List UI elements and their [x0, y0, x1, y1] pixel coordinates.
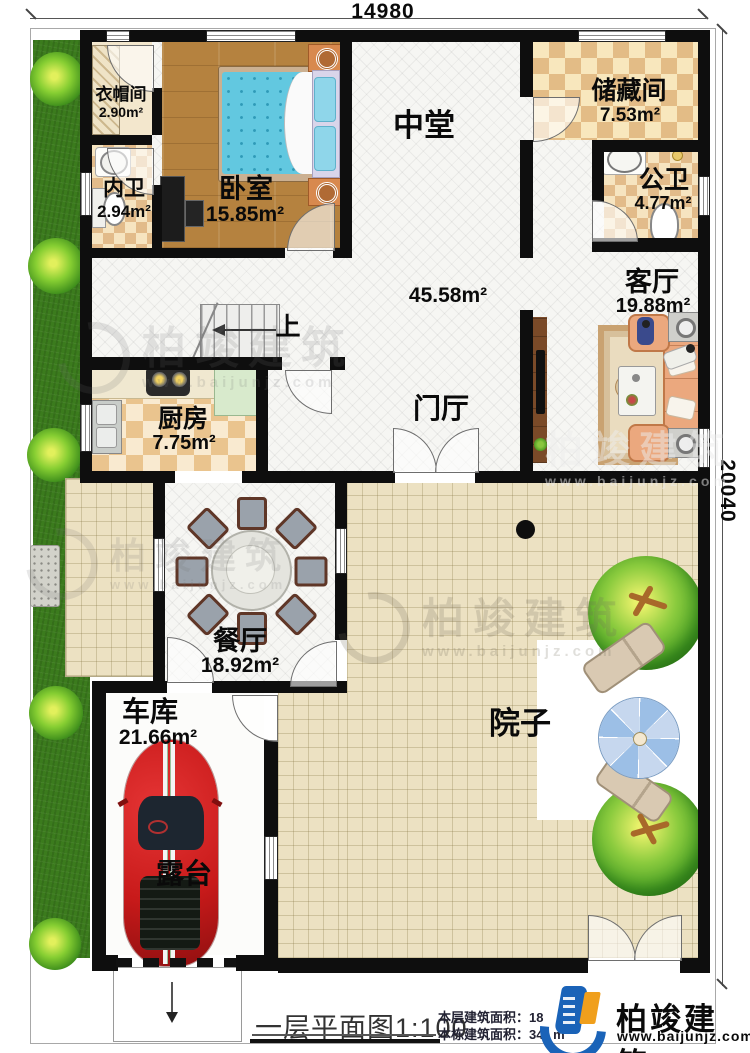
chair-icon [295, 557, 328, 587]
room-name-public-bath: 公卫 [639, 168, 689, 193]
wall [680, 958, 710, 973]
window [80, 172, 92, 216]
wall [242, 471, 345, 483]
wall [475, 471, 698, 483]
wall [92, 681, 167, 693]
wall [92, 248, 285, 258]
room-area-inner-bath: 2.94m² [97, 203, 151, 220]
room-area-dining: 18.92m² [201, 655, 279, 676]
wall [256, 370, 268, 471]
room-name-terrace: 露台 [156, 860, 212, 888]
window [698, 428, 710, 468]
room-area-bedroom: 15.85m² [206, 204, 284, 225]
bed-blanket [284, 72, 315, 174]
window [698, 176, 710, 216]
chair-icon [176, 557, 209, 587]
room-area-hall: 45.58m² [409, 285, 487, 306]
bush [29, 918, 81, 970]
driveway-apron [113, 967, 242, 1042]
kitchen-sink-basin [96, 427, 117, 448]
terrace-paving [278, 693, 347, 958]
wall [152, 88, 162, 135]
room-name-cloakroom: 衣帽间 [96, 86, 147, 103]
side-table-lamp [676, 318, 696, 338]
stairs-arrow [224, 329, 276, 331]
tv-icon [536, 350, 545, 414]
wall [592, 140, 698, 152]
car-steering [148, 820, 168, 834]
wall [520, 140, 533, 258]
room-area-public-bath: 4.77m² [634, 194, 691, 212]
kitchen-sink-basin [96, 404, 117, 425]
window [264, 836, 278, 880]
room-area-kitchen: 7.75m² [152, 433, 215, 453]
wall [340, 42, 352, 258]
room-name-garage: 车库 [122, 698, 178, 726]
bush [27, 428, 81, 482]
chair-icon [237, 497, 267, 530]
stove-burner [152, 372, 167, 387]
brand-name: 柏竣建筑 [616, 994, 750, 1053]
wall [264, 740, 278, 838]
room-area-storage: 7.53m² [600, 106, 660, 125]
room-area-living: 19.88m² [616, 296, 691, 316]
room-area-garage: 21.66m² [119, 727, 197, 748]
wall [92, 357, 282, 370]
driveway-arrow-head [166, 1012, 178, 1023]
bush [30, 52, 84, 106]
coffee-table-decor [626, 394, 638, 406]
wall [92, 955, 118, 971]
window [80, 404, 92, 452]
floor-area-label: 本层建筑面积： [438, 1010, 529, 1025]
stove-burner [172, 372, 187, 387]
wall [236, 955, 278, 971]
dining-table-inner [226, 545, 275, 594]
armchair-icon [628, 424, 670, 462]
room-name-inner-bath: 内卫 [103, 178, 145, 199]
stone-mat [30, 545, 60, 607]
window [153, 538, 165, 592]
wall [520, 310, 533, 471]
wall [278, 958, 588, 973]
window [206, 30, 296, 42]
dresser-icon [185, 200, 204, 227]
room-name-dining: 餐厅 [213, 628, 267, 655]
plant-icon [534, 438, 547, 451]
brand-website: www.baijunjz.com [617, 1028, 750, 1044]
floor-plan: 14980 20040 柏竣建筑 www.baijunjz.com 柏竣建筑 w… [0, 0, 750, 1053]
room-name-storage: 储藏间 [591, 79, 666, 104]
person-head [686, 344, 695, 353]
room-name-kitchen: 厨房 [158, 407, 208, 432]
side-table-lamp [676, 434, 696, 454]
umbrella-center [633, 732, 647, 746]
wall [345, 471, 395, 483]
bush [29, 686, 83, 740]
title-underline-thick [250, 1039, 440, 1043]
room-name-bedroom: 卧室 [219, 176, 273, 203]
company-logo [540, 982, 614, 1048]
wall [92, 135, 152, 145]
nightstand-lamp [316, 182, 338, 204]
coffee-table-decor [632, 374, 640, 382]
total-area-label: 本栋建筑面积： [438, 1027, 529, 1042]
stairs-up-label: 上 [275, 315, 300, 340]
wall [592, 152, 604, 202]
pillow [314, 77, 336, 122]
wardrobe-icon [160, 176, 185, 242]
wall [264, 878, 278, 958]
dimension-depth: 20040 [717, 411, 739, 571]
person-head [642, 320, 650, 328]
window [106, 30, 130, 42]
room-name-courtyard: 院子 [489, 708, 551, 739]
room-name-foyer: 门厅 [413, 395, 469, 423]
wall [330, 357, 345, 370]
window [335, 528, 347, 574]
window [578, 30, 666, 42]
car-windshield [138, 796, 204, 850]
wall [92, 471, 175, 483]
side-patio [65, 478, 155, 677]
pillow [314, 126, 336, 171]
stairs-arrow-head [212, 324, 225, 336]
driveway-arrow [171, 982, 173, 1014]
dimension-width: 14980 [351, 1, 414, 22]
column [516, 520, 535, 539]
fridge-icon [214, 368, 258, 416]
title-underline [252, 1034, 436, 1036]
room-name-living: 客厅 [625, 269, 679, 296]
garage-door [116, 958, 236, 967]
room-name-hall: 中堂 [393, 110, 455, 141]
room-area-cloakroom: 2.90m² [99, 105, 143, 119]
wall [520, 42, 533, 97]
nightstand-lamp [316, 48, 338, 70]
bush [28, 238, 84, 294]
logo-window-pips [563, 994, 575, 1024]
wall [92, 693, 106, 971]
